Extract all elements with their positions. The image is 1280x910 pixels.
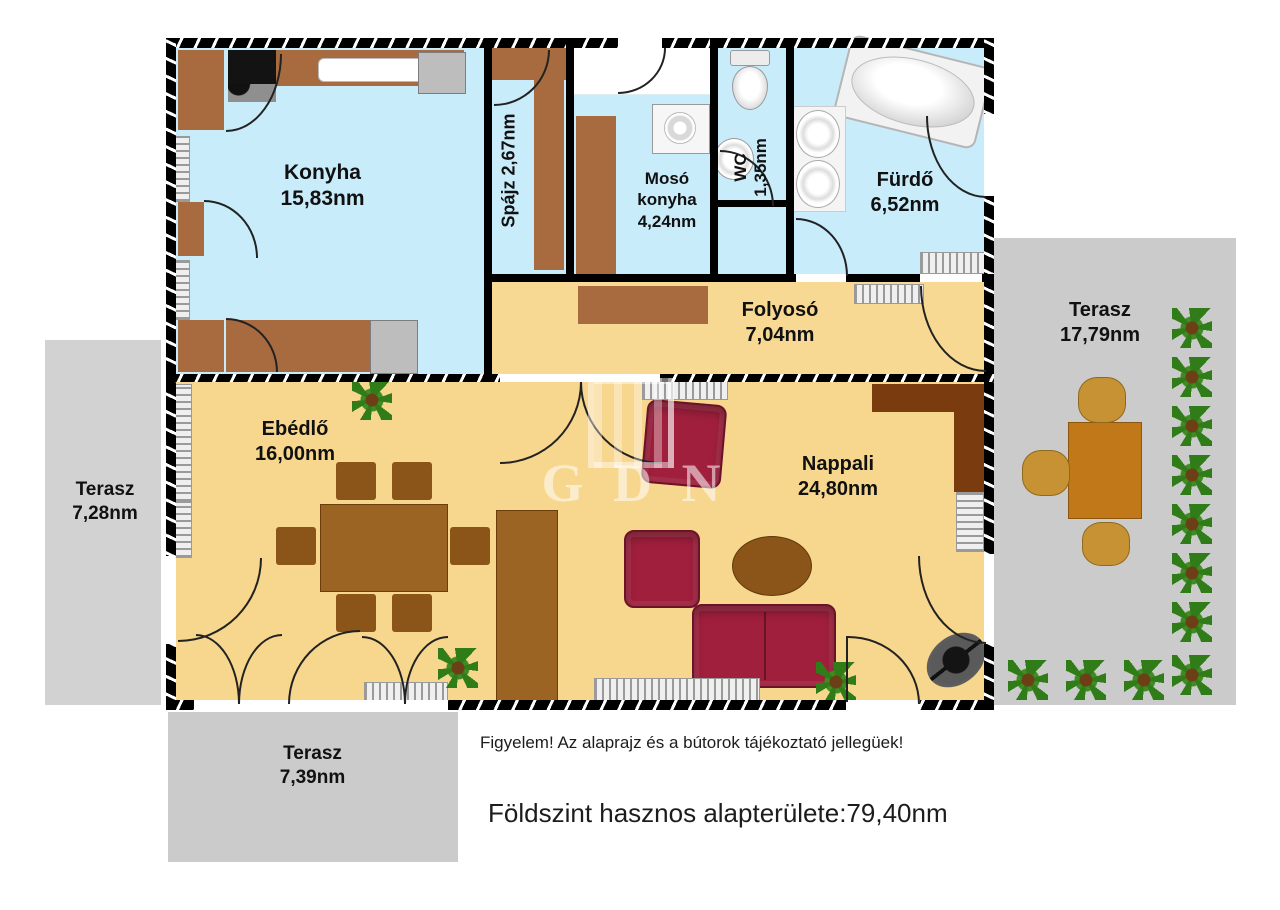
room-label-nappali: Nappali 24,80nm — [758, 452, 918, 502]
kitchen-door-leaf — [178, 320, 224, 372]
terrace-chair — [1078, 377, 1126, 423]
plant-icon — [1172, 406, 1212, 446]
room-label-konyha: Konyha 15,83nm — [240, 160, 405, 213]
radiator-icon — [594, 678, 760, 702]
terrace-chair — [1022, 450, 1070, 496]
toilet-tank-icon — [730, 50, 770, 66]
total-area-text: Földszint hasznos alapterülete:79,40nm — [488, 798, 948, 829]
living-cabinet — [954, 412, 984, 492]
door-opening — [618, 38, 662, 48]
dining-chair — [276, 527, 316, 565]
wall — [484, 274, 994, 282]
kitchen-appliance-top — [418, 52, 466, 94]
room-label-wc: WC 1,35nm — [712, 112, 790, 222]
room-label-spajz: Spájz 2,67nm — [474, 80, 544, 260]
disclaimer-text: Figyelem! Az alaprajz és a bútorok tájék… — [480, 733, 903, 753]
dining-chair — [392, 594, 432, 632]
armchair-icon — [624, 530, 700, 608]
living-cabinet — [872, 384, 986, 412]
terrace-label-left: Terasz 7,28nm — [40, 478, 170, 526]
hallway-sideboard — [578, 286, 708, 324]
terrace-chair — [1082, 522, 1130, 566]
dining-table — [320, 504, 448, 592]
room-label-moso-konyha: Mosó konyha 4,24nm — [612, 168, 722, 232]
washbasin-icon — [796, 110, 840, 158]
dining-chair — [392, 462, 432, 500]
terrace-table — [1068, 422, 1142, 519]
gdn-watermark: G D N — [530, 452, 740, 514]
terrace-label-bottom: Terasz 7,39nm — [240, 742, 385, 790]
plant-icon — [1172, 602, 1212, 642]
coffee-table — [732, 536, 812, 596]
terrace-label-right: Terasz 17,79nm — [1010, 298, 1190, 348]
laundry-cabinet — [576, 116, 616, 278]
room-label-ebedlo: Ebédlő 16,00nm — [215, 417, 375, 467]
plant-icon — [1124, 660, 1164, 700]
dining-chair — [450, 527, 490, 565]
kitchen-door-leaf — [178, 202, 204, 256]
plant-icon — [352, 380, 392, 420]
wall — [166, 38, 994, 48]
plant-icon — [1172, 655, 1212, 695]
dining-chair — [336, 594, 376, 632]
door-leaf — [846, 636, 848, 702]
room-label-furdo: Fürdő 6,52nm — [830, 168, 980, 218]
radiator-icon — [956, 492, 984, 552]
sofa-icon — [692, 604, 836, 688]
kitchen-sink-icon — [318, 58, 430, 82]
radiator-icon — [920, 252, 986, 274]
plant-icon — [1066, 660, 1106, 700]
washing-machine-drum-icon — [664, 112, 696, 144]
plant-icon — [1172, 504, 1212, 544]
kitchen-appliance-bottom — [370, 320, 418, 374]
plant-icon — [1172, 553, 1212, 593]
wardrobe — [496, 510, 558, 702]
plant-icon — [1172, 357, 1212, 397]
dining-chair — [336, 462, 376, 500]
plant-icon — [1172, 455, 1212, 495]
door-opening — [920, 274, 982, 282]
room-label-folyoso: Folyosó 7,04nm — [700, 298, 860, 348]
door-opening — [166, 556, 176, 644]
kitchen-door-leaf — [178, 50, 224, 130]
radiator-icon — [854, 284, 924, 304]
plant-icon — [1008, 660, 1048, 700]
wall — [566, 38, 574, 282]
floor-plan: G D N Konyha 15,83nm Spájz 2,67nm Mosó k… — [0, 0, 1280, 910]
